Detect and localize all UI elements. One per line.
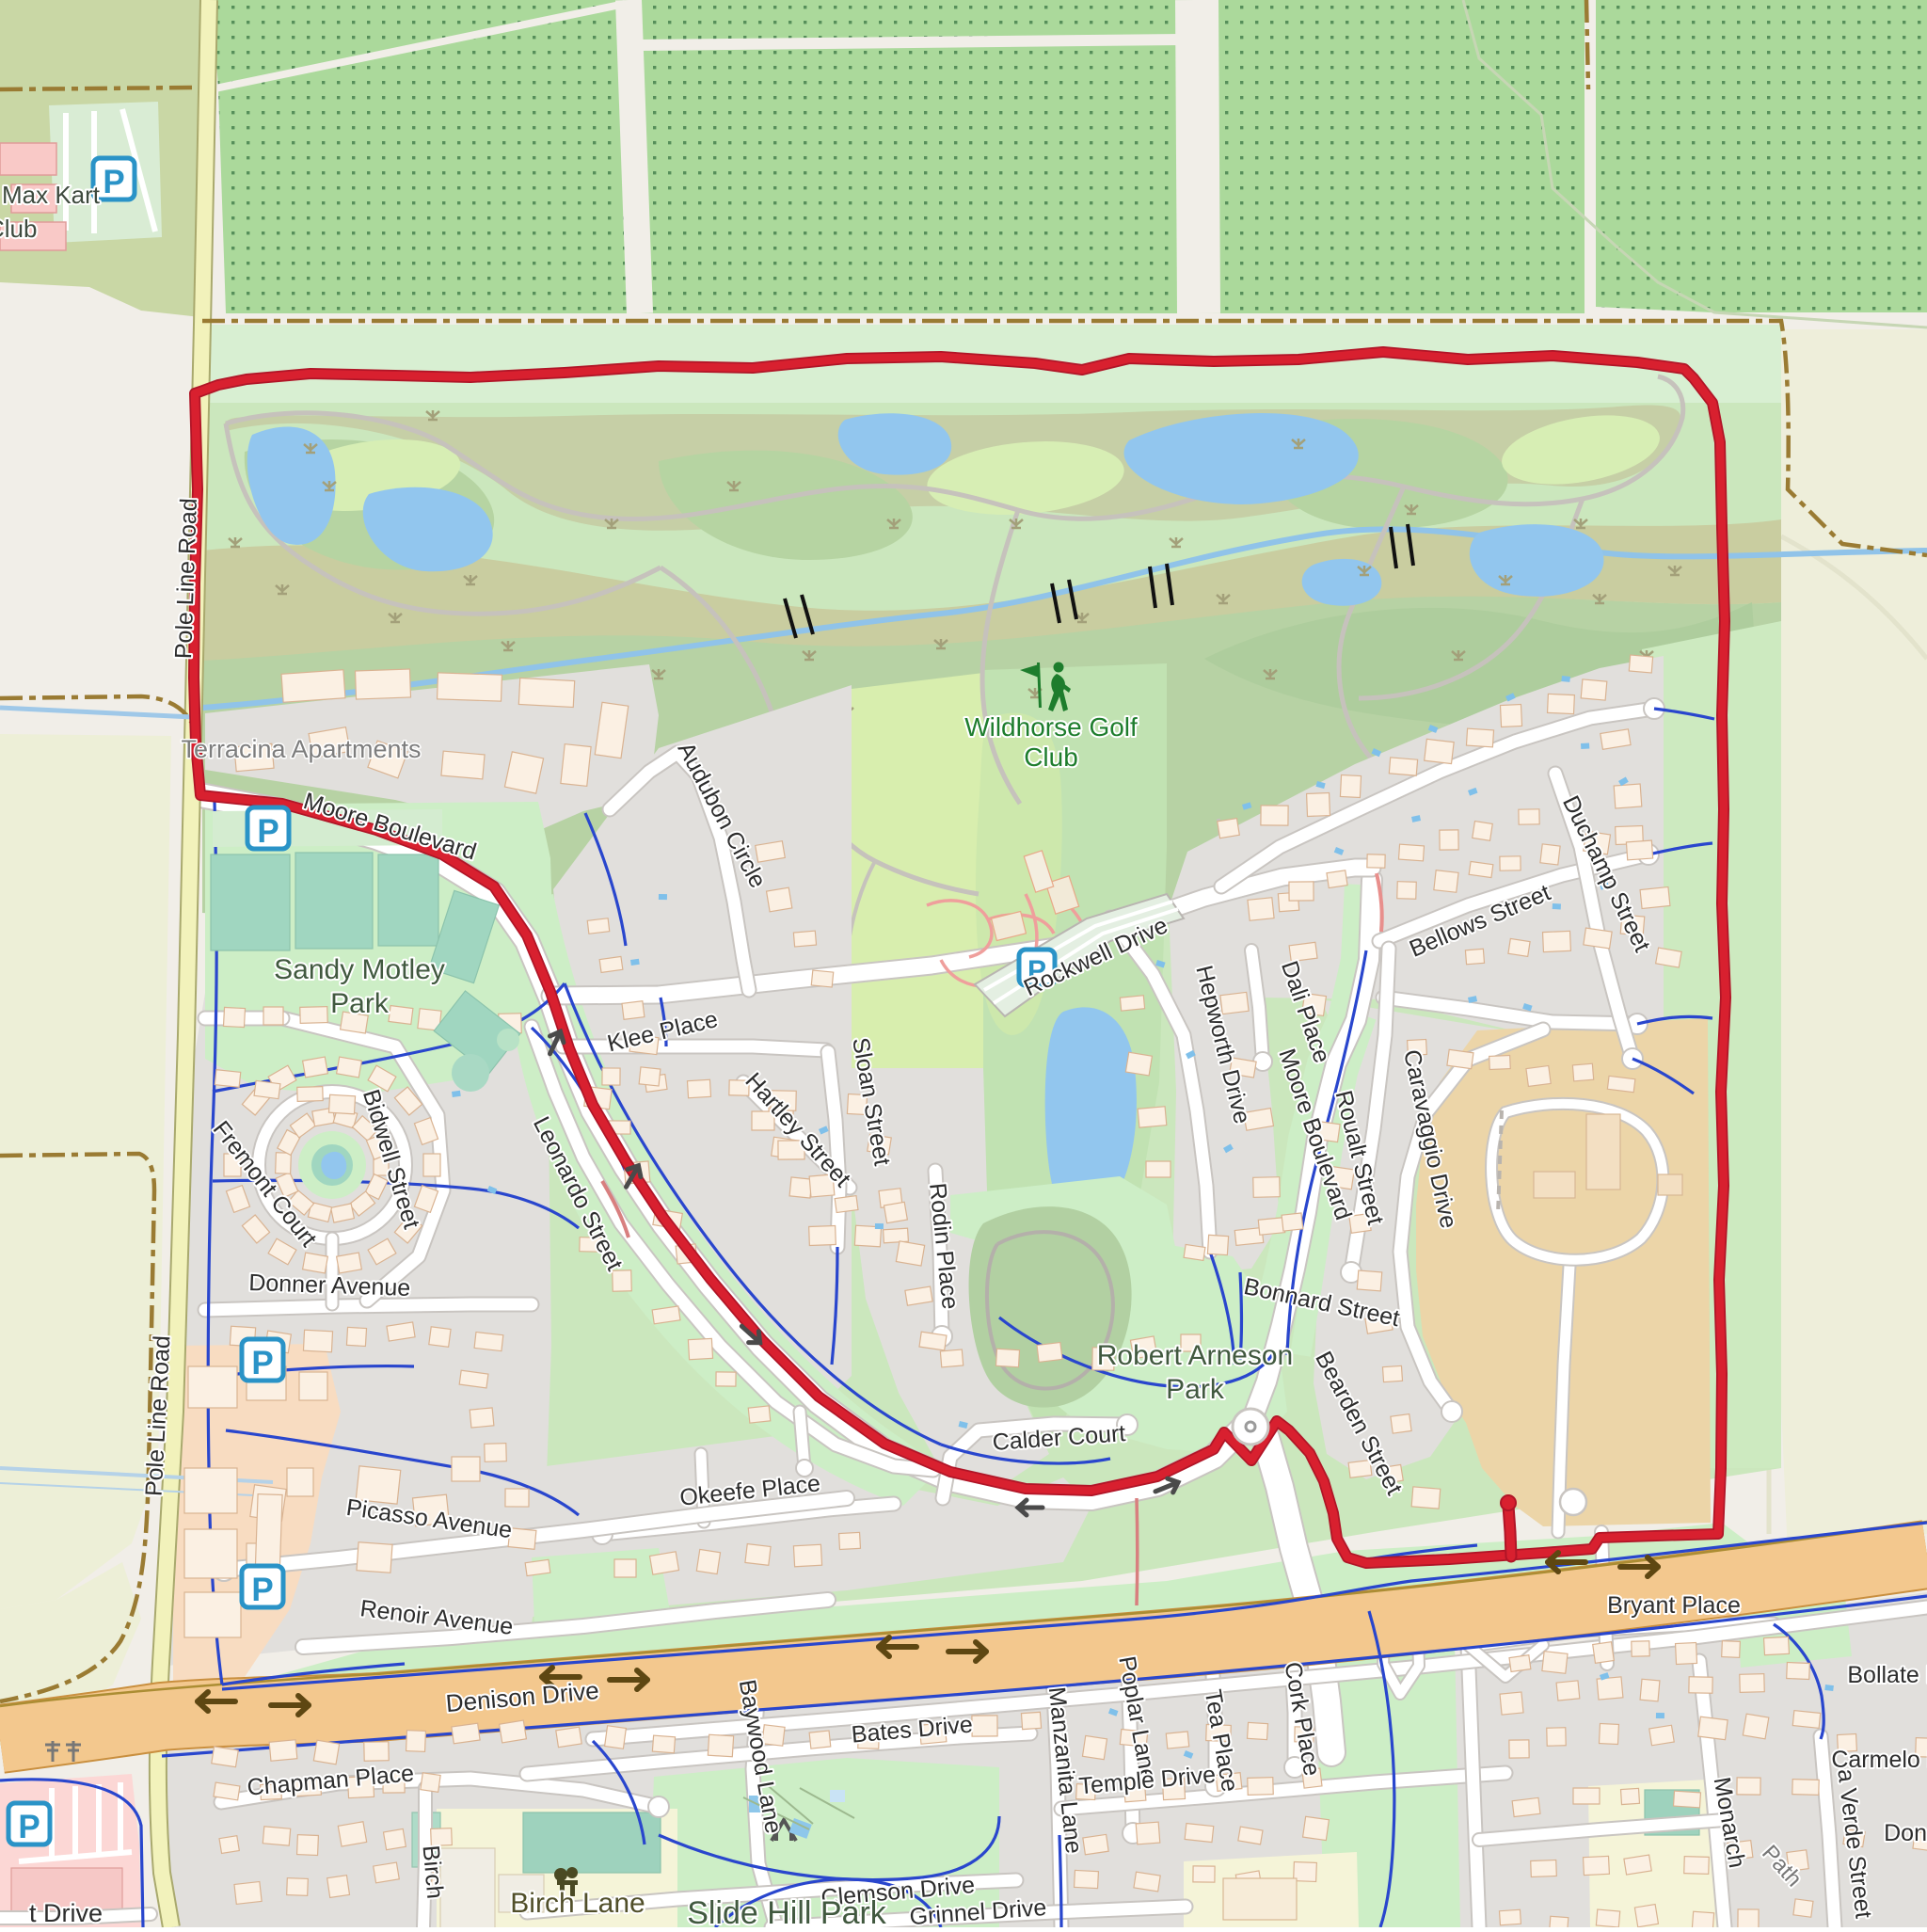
svg-text:Dona: Dona	[1884, 1820, 1927, 1846]
svg-text:Bollate L: Bollate L	[1847, 1662, 1927, 1688]
svg-text:Terracina Apartments: Terracina Apartments	[181, 735, 421, 763]
svg-text:Wildhorse Golf: Wildhorse Golf	[964, 712, 1138, 742]
svg-text:Bryant Place: Bryant Place	[1607, 1592, 1741, 1619]
svg-text:P: P	[103, 164, 124, 200]
svg-text:P: P	[257, 813, 279, 850]
svg-text:P: P	[18, 1809, 40, 1845]
svg-text:P: P	[251, 1572, 273, 1608]
svg-text:Max Kart: Max Kart	[2, 181, 101, 209]
svg-text:Donner Avenue: Donner Avenue	[248, 1269, 411, 1301]
svg-text:Park: Park	[330, 988, 390, 1019]
svg-text:t Drive: t Drive	[29, 1899, 103, 1927]
svg-text:Park: Park	[1166, 1374, 1225, 1405]
svg-text:Sandy Motley: Sandy Motley	[274, 954, 445, 985]
svg-text:Birch: Birch	[418, 1844, 449, 1900]
svg-text:Birch Lane: Birch Lane	[510, 1888, 645, 1919]
svg-text:Club: Club	[0, 215, 37, 243]
svg-text:Pole Line Road: Pole Line Road	[170, 498, 202, 660]
svg-text:Slide Hill Park: Slide Hill Park	[687, 1895, 887, 1927]
svg-text:Robert Arneson: Robert Arneson	[1097, 1340, 1293, 1371]
svg-text:P: P	[251, 1345, 273, 1381]
svg-text:Club: Club	[1024, 742, 1078, 772]
